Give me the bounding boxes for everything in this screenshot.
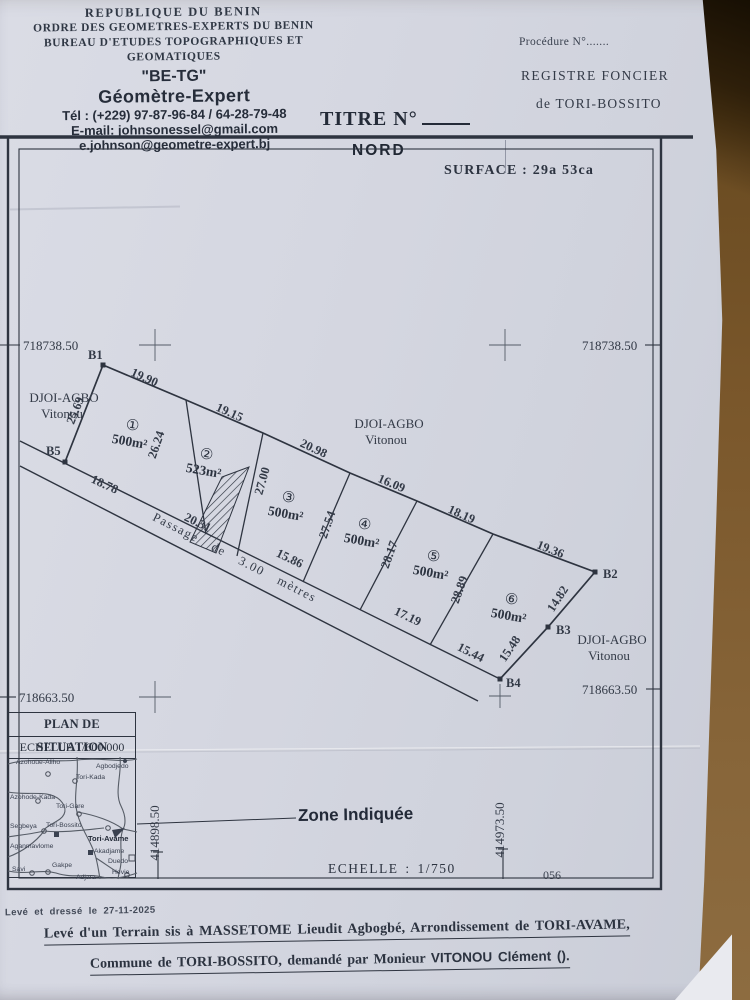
document-content: REPUBLIQUE DU BENIN ORDRE DES GEOMETRES-… — [0, 0, 750, 1000]
coord-label-south-west: 718663.50 — [19, 690, 74, 705]
coord-label-north-east: 718738.50 — [582, 338, 637, 353]
measure-label: 19.36 — [535, 538, 566, 562]
measure-label: 15.48 — [496, 633, 523, 664]
adjoining-region-label: DJOI-AGBO — [354, 416, 423, 431]
coord-label-east: 414973.50 — [492, 802, 507, 857]
place-label: Akadjame — [94, 848, 124, 855]
place-label: Savi — [12, 866, 25, 873]
place-label: Tori-Gare — [56, 803, 84, 810]
adjoining-owner-label: Vitonou — [365, 432, 407, 447]
adjoining-owner-label: Vitonou — [41, 406, 83, 421]
place-label: Segbeya — [10, 823, 37, 830]
measure-label: 15.44 — [455, 640, 487, 666]
place-label: Azohode-Kada — [10, 794, 55, 801]
place-label: Agbodjedo — [96, 763, 129, 770]
measure-label: 26.24 — [145, 428, 168, 460]
parcel-dividers — [186, 400, 493, 645]
point-label-b1: B1 — [88, 348, 103, 362]
coord-label-north-west: 718738.50 — [23, 338, 78, 353]
adjoining-region-label: DJOI-AGBO — [29, 390, 98, 405]
measure-label: 19.15 — [214, 400, 245, 424]
coord-label-south-east: 718663.50 — [582, 682, 637, 697]
measure-label: 18.19 — [446, 502, 477, 526]
measure-label: 17.19 — [392, 604, 423, 629]
measure-label: 18.78 — [89, 472, 120, 497]
coord-label-west: 414898.50 — [147, 805, 162, 860]
place-label: Hevie — [112, 869, 129, 876]
photographed-survey-document: { "header": { "line1": "REPUBLIQUE DU BE… — [0, 0, 750, 1000]
adjoining-region-label: DJOI-AGBO — [577, 632, 646, 647]
measure-label: 15.86 — [274, 546, 305, 571]
place-label: Tori-Bossito — [46, 822, 82, 829]
point-label-b5: B5 — [46, 444, 61, 458]
adjoining-owner-label: Vitonou — [588, 648, 630, 663]
place-label: Aganmavlome — [10, 843, 53, 850]
point-label-b2: B2 — [603, 567, 618, 581]
measure-label: 19.90 — [129, 365, 160, 389]
measure-label: 27.54 — [316, 508, 339, 540]
place-label-highlighted: Tori-Avame — [88, 834, 128, 843]
place-label: Adjara — [76, 874, 96, 881]
measure-label: 28.17 — [378, 539, 401, 570]
measure-label: 14.82 — [544, 583, 571, 614]
measure-label: 16.09 — [376, 471, 407, 495]
place-label: Azohoue-Aliho — [16, 759, 60, 766]
measure-label: 28.89 — [448, 574, 471, 605]
point-label-b3: B3 — [556, 623, 571, 637]
point-label-b4: B4 — [506, 676, 521, 690]
place-label: Tori-Kada — [76, 774, 105, 781]
place-label: Gakpe — [52, 862, 72, 869]
place-label: Duedo — [108, 858, 128, 865]
